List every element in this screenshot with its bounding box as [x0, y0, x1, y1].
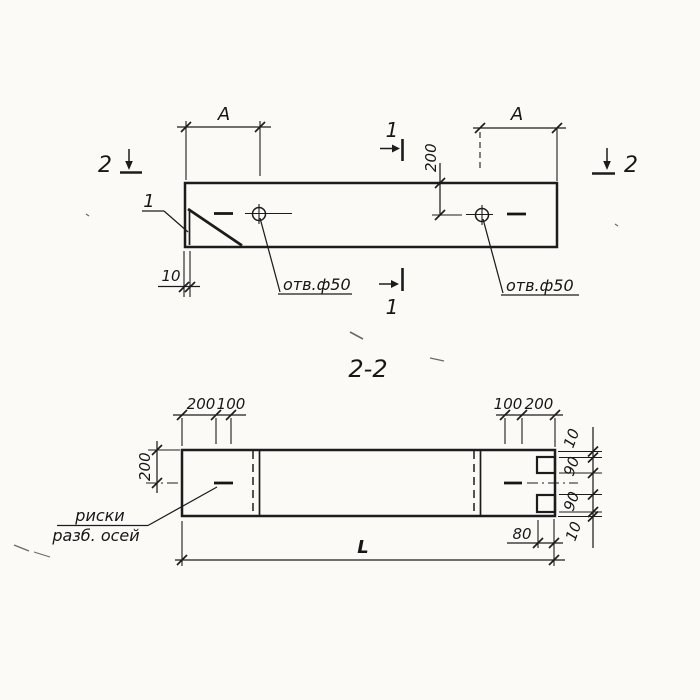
hole-left: [214, 204, 292, 224]
section-marker-2-left: 2: [98, 149, 142, 178]
detail-callout-label: 1: [143, 191, 154, 212]
section-marker-1-top-label: 1: [386, 118, 399, 142]
plan-beam-outline: [185, 183, 557, 247]
section-marker-2-left-label: 2: [98, 153, 112, 178]
hole-right: [432, 205, 526, 225]
section-marker-1-bottom: 1: [379, 268, 403, 319]
end-notch-top: [537, 457, 555, 473]
dim-a-right-label: A: [510, 104, 523, 125]
dim-a-left-label: A: [217, 104, 230, 125]
hole-label-right: отв.ф50: [483, 219, 579, 295]
section-beam-outline: [182, 450, 555, 516]
dims-right-chain: 10 90 90 10: [558, 426, 602, 548]
hole-label-right-text: отв.ф50: [506, 276, 574, 295]
arrow-down-icon: [603, 161, 611, 170]
dim-notch-label: 80: [512, 525, 531, 543]
end-notch-bottom: [537, 495, 555, 512]
dim-hole-offset: 200: [422, 143, 445, 220]
drawing-sheet: 1 A A 200: [0, 0, 700, 700]
dim-right-10-bottom: 10: [562, 519, 585, 543]
detail-callout: 1: [142, 191, 188, 232]
technical-drawing: 1 A A 200: [0, 0, 700, 700]
dim-top-left-200: 200: [187, 395, 216, 413]
dim-edge-offset-label: 10: [161, 267, 180, 285]
dim-right-10-top: 10: [560, 426, 583, 450]
joint-lines-left: [253, 451, 260, 515]
dim-top-left-100: 100: [217, 395, 246, 413]
dim-right-90-bottom: 90: [560, 489, 583, 513]
dim-height-label: 200: [136, 452, 154, 481]
dim-top-right-200: 200: [525, 395, 554, 413]
section-marker-1-bottom-label: 1: [386, 295, 399, 319]
axis-note-line2: разб. осей: [51, 526, 139, 545]
dim-a-left: A: [177, 104, 271, 180]
axis-note-line1: риски: [74, 506, 124, 525]
dims-top-left: 200 100: [173, 395, 246, 446]
dim-edge-offset: 10: [158, 251, 200, 297]
dim-a-right: A: [473, 104, 566, 181]
section-view: 200 200 100 100 200: [51, 395, 602, 566]
section-marker-2-right: 2: [592, 148, 638, 178]
arrow-right-icon: [391, 280, 399, 288]
dim-height: 200: [136, 441, 180, 493]
dims-top-right: 100 200: [494, 395, 563, 447]
dim-top-right-100: 100: [494, 395, 523, 413]
hole-label-left: отв.ф50: [260, 218, 352, 294]
joint-lines-right: [474, 451, 481, 515]
arrow-down-icon: [125, 161, 133, 170]
dim-length-label: L: [357, 537, 368, 558]
section-title: 2-2: [348, 355, 387, 383]
section-marker-1-top: 1: [380, 118, 403, 161]
dim-length: L: [175, 521, 565, 566]
section-marker-2-right-label: 2: [624, 153, 638, 178]
dim-hole-offset-label: 200: [422, 143, 440, 172]
hole-label-left-text: отв.ф50: [283, 275, 351, 294]
arrow-right-icon: [392, 145, 400, 153]
plan-view: 1 A A 200: [98, 104, 638, 319]
